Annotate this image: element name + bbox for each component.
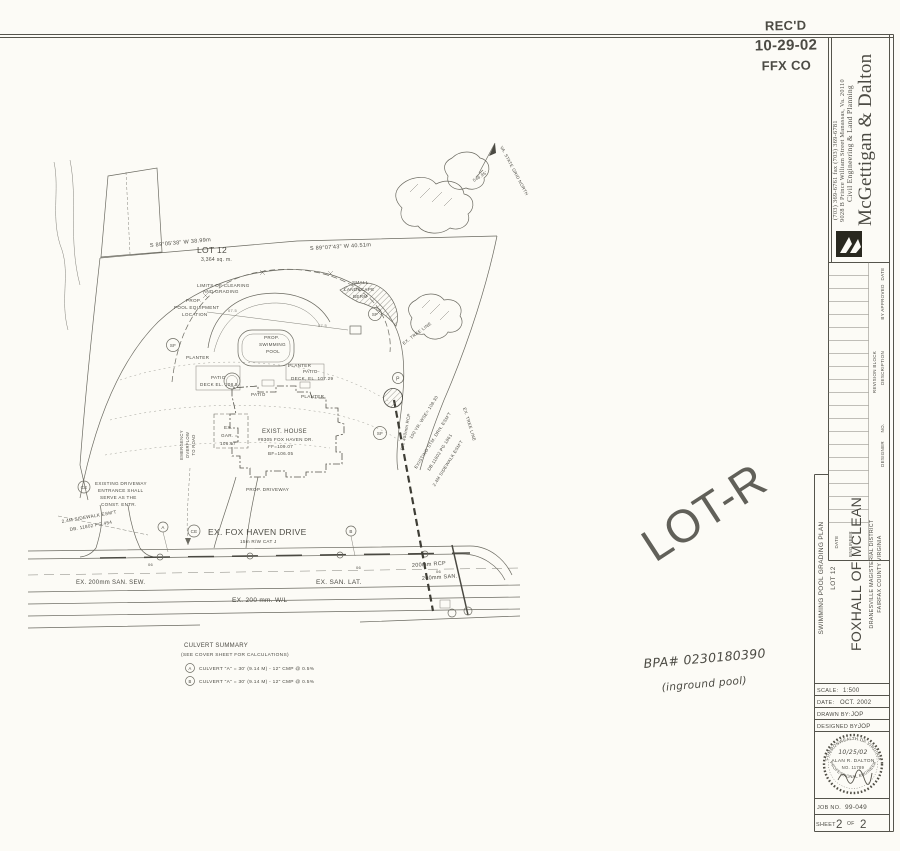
firm-phones: (703) 369-6761 fax (703) 369-6781 bbox=[832, 120, 839, 220]
sheet-number: 2 bbox=[836, 819, 843, 831]
ce-note: CONST. ENTR. bbox=[101, 502, 137, 507]
sf-symbol: SF bbox=[372, 312, 378, 317]
plan-label: PROP. bbox=[264, 335, 279, 340]
plan-label: POOL bbox=[266, 349, 280, 354]
lot-label: LOT 12 bbox=[197, 245, 227, 255]
job-value: 99-049 bbox=[845, 804, 867, 811]
house-label: EXIST. HOUSE bbox=[262, 429, 307, 435]
pencil-pool-note: (inground pool) bbox=[661, 675, 747, 694]
storm-label: 2.4M SIDEWALK ESM'T bbox=[431, 439, 464, 487]
plan-label: PATIO bbox=[251, 392, 266, 397]
drawn-value: JOP bbox=[851, 712, 864, 718]
north-arrow-label: VA. STATE GRID NORTH bbox=[499, 145, 529, 196]
revision-col-designer: DESIGNER bbox=[880, 441, 885, 467]
house-label: BF=106.05 bbox=[268, 451, 293, 456]
revision-col-no: NO. bbox=[880, 424, 885, 433]
revision-col-by: BY APPROVED bbox=[880, 284, 885, 320]
utility-tick: 06 bbox=[436, 569, 442, 574]
clearing-limits bbox=[80, 269, 404, 498]
job-label: JOB NO. bbox=[817, 805, 841, 811]
plan-label: LOCATION bbox=[182, 312, 208, 317]
utility-label: 200mm SAN. bbox=[422, 574, 458, 582]
revision-col-date: DATE bbox=[880, 268, 885, 281]
project-county: FAIRFAX COUNTY VIRGINIA bbox=[877, 535, 883, 612]
ce-note: EXISTING DRIVEWAY bbox=[95, 481, 147, 486]
plan-labels: LIMITS OF CLEARING AND GRADING PROP. POO… bbox=[61, 280, 458, 604]
project-name: FOXHALL OF MCLEAN bbox=[848, 497, 864, 651]
revision-col-description: DESCRIPTION bbox=[880, 351, 885, 385]
project-district: DRANESVILLE MAGISTERIAL DISTRICT bbox=[869, 519, 875, 628]
treeline-label: EX. TREE LINE bbox=[402, 321, 433, 346]
utility-label: 200mm RCP bbox=[412, 561, 447, 569]
contour-label: 07.5 bbox=[228, 308, 237, 313]
plan-label: SMALL bbox=[352, 280, 369, 285]
designed-label: DESIGNED BY: bbox=[817, 724, 860, 730]
symbols: SF SF SF CE CE A B bbox=[78, 308, 387, 557]
sf-symbol: SF bbox=[170, 343, 176, 348]
date-label: DATE: bbox=[817, 700, 834, 706]
stamp-line3: FFX CO bbox=[761, 58, 811, 74]
plan-label: DECK, EL. 107.29 bbox=[291, 376, 333, 381]
sheet-label: SHEET bbox=[816, 822, 836, 828]
pool-equipment bbox=[350, 326, 361, 334]
plan-label: AND GRADING bbox=[203, 289, 239, 294]
seal-license: NO. 11789 bbox=[842, 765, 865, 770]
house-label: FF=109.07 bbox=[268, 444, 293, 449]
north-arrow: VA. STATE GRID NORTH 546.95' bbox=[472, 143, 530, 196]
street-sub: 15m R/W CAT J bbox=[240, 539, 277, 544]
bearing-right: S 89°07'43" W 40.51m bbox=[310, 242, 372, 252]
sheet-border bbox=[0, 35, 894, 832]
stamp-line2: 10-29-02 bbox=[755, 36, 818, 54]
revision-title: REVISION BLOCK bbox=[872, 351, 877, 393]
culvert-b-symbol: B bbox=[349, 529, 352, 534]
utility-label: EX. SAN. LAT. bbox=[316, 579, 362, 586]
plan-label: PLANTER bbox=[288, 363, 312, 368]
ce-note: SERVE AS THE bbox=[100, 495, 137, 500]
scale-label: SCALE: bbox=[817, 688, 839, 694]
drawn-label: DRAWN BY: bbox=[817, 712, 851, 718]
utility-label: EX. 200 mm. W/L bbox=[232, 597, 288, 604]
plan-label: PLANTER bbox=[301, 394, 325, 399]
sheet-info-block: SCALE: 1:500 DATE: OCT. 2002 DRAWN BY: J… bbox=[817, 688, 872, 730]
sf-symbol: SF bbox=[377, 431, 383, 436]
seal-date: 10/25/02 bbox=[838, 749, 867, 756]
culvert-b-symbol: B bbox=[188, 679, 191, 684]
job-block: JOB NO. 99-049 SHEET 2 OF 2 bbox=[816, 804, 867, 831]
culvert-b-text: CULVERT "A" = 30' (9.14 M) - 12" CMP @ 0… bbox=[199, 679, 315, 685]
plan-label: LANDSCAPE bbox=[344, 287, 375, 292]
site-plan-sheet: REC'D 10-29-02 FFX CO McGettigan & Dalto… bbox=[0, 0, 900, 851]
street-name: EX. FOX HAVEN DRIVE bbox=[208, 527, 307, 537]
drawing-sheet: REC'D 10-29-02 FFX CO McGettigan & Dalto… bbox=[0, 0, 900, 851]
red-marker-note: LOT-R bbox=[632, 453, 775, 571]
firm-address: 9028 B Prince William Street Manassas, V… bbox=[839, 79, 846, 222]
structure-p-label: P bbox=[396, 377, 400, 383]
culvert-a-symbol: A bbox=[161, 525, 164, 530]
tree-lines bbox=[54, 152, 489, 339]
received-stamp: REC'D 10-29-02 FFX CO bbox=[754, 17, 817, 73]
plan-label: PLANTER bbox=[186, 355, 210, 360]
road: 06 06 06 bbox=[28, 545, 520, 628]
plan-label: LIMITS OF CLEARING bbox=[197, 283, 250, 288]
culvert-a-text: CULVERT "A" = 30' (9.14 M) - 12" CMP @ 0… bbox=[199, 666, 315, 672]
sheet-of: OF bbox=[847, 821, 855, 827]
utility-label: EX. 200mm SAN. SEW. bbox=[76, 580, 145, 586]
utility-tick: 06 bbox=[148, 562, 154, 567]
plan-label: PATIO bbox=[211, 375, 226, 380]
plan-label: POOL EQUIPMENT bbox=[174, 305, 219, 310]
house-label: #8305 FOX HAVEN DR. bbox=[258, 437, 313, 442]
plan-label: PROP. bbox=[186, 298, 201, 303]
plan-label: PATIO bbox=[303, 369, 318, 374]
sheet-total: 2 bbox=[860, 819, 867, 831]
project-title-block: SWIMMING POOL GRADING PLAN LOT 12 FOXHAL… bbox=[818, 497, 883, 651]
culvert-subtitle: (SEE COVER SHEET FOR CALCULATIONS) bbox=[181, 652, 289, 658]
garage-label: GAR. = bbox=[221, 433, 238, 438]
emergency-overflow: EMERGENCY OVERFLOW TO ROAD bbox=[179, 430, 196, 545]
ce-note: ENTRANCE SHALL bbox=[98, 488, 143, 493]
culvert-title: CULVERT SUMMARY bbox=[184, 643, 248, 649]
date-value: OCT. 2002 bbox=[840, 700, 872, 706]
designed-value: JOP bbox=[858, 724, 871, 730]
treeline-label: EX. TREE LINE bbox=[462, 407, 477, 442]
project-lot: LOT 12 bbox=[830, 566, 837, 589]
seal-name: ALAN R. DALTON bbox=[831, 758, 874, 764]
plan-type: SWIMMING POOL GRADING PLAN bbox=[818, 521, 825, 634]
lot-area: 3,364 sq. m. bbox=[201, 257, 232, 263]
firm-name: McGettigan & Dalton bbox=[855, 53, 876, 226]
rcp450-label: EX. 450mm RCP bbox=[400, 413, 412, 451]
plan-label: PROP. DRIVEWAY bbox=[246, 487, 289, 492]
culvert-a-symbol: A bbox=[188, 666, 191, 671]
engineer-seal: COMMONWEALTH OF VIRGINIA PROFESSIONAL EN… bbox=[824, 735, 883, 793]
utility-tick: 06 bbox=[356, 565, 362, 570]
pencil-permit-note: BPA# 0230180390 bbox=[643, 645, 766, 671]
culvert-summary: CULVERT SUMMARY (SEE COVER SHEET FOR CAL… bbox=[181, 643, 315, 686]
ce-symbol: CE bbox=[81, 485, 88, 490]
plan-label: DECK EL. 108.5 bbox=[200, 382, 238, 387]
garage-label: EX. bbox=[224, 425, 232, 430]
revision-col-date2: DATE bbox=[834, 536, 839, 549]
plan-label: SWIMMING bbox=[259, 342, 286, 347]
overflow-label: TO ROAD bbox=[191, 434, 196, 455]
ce-symbol: CE bbox=[191, 529, 198, 534]
overflow-label: OVERFLOW bbox=[185, 432, 190, 458]
firm-tagline: Civil Engineering & Land Planning bbox=[845, 85, 854, 202]
firm-block: McGettigan & Dalton Civil Engineering & … bbox=[832, 53, 876, 257]
overflow-label: EMERGENCY bbox=[179, 430, 184, 460]
plan-label: BERM bbox=[353, 294, 367, 299]
scale-value: 1:500 bbox=[843, 688, 860, 694]
stamp-line1: REC'D bbox=[765, 18, 807, 34]
garage-label: 106.67 bbox=[220, 441, 236, 446]
site-plan-drawing: VA. STATE GRID NORTH 546.95' S 89°05'38"… bbox=[28, 143, 530, 686]
